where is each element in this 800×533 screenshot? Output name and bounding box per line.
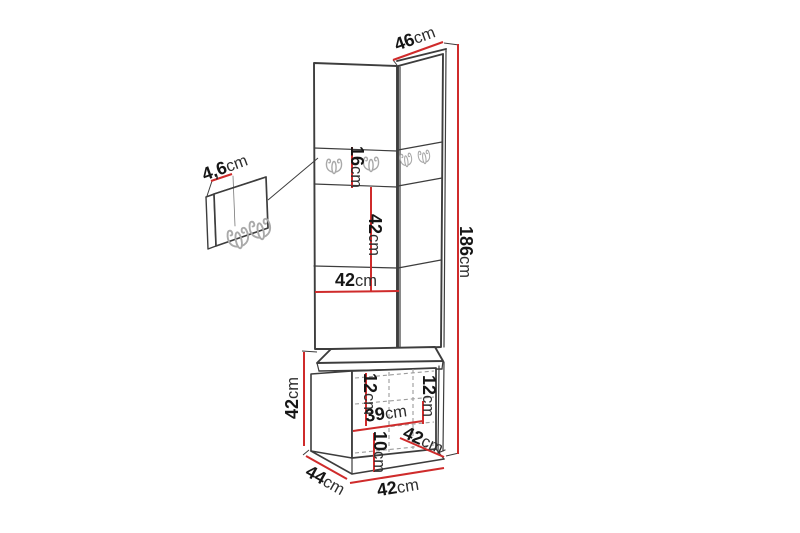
dim-line-panel-width	[315, 291, 399, 292]
dim-label-panel-width: 42cm	[335, 270, 377, 290]
right-wall-panel	[397, 49, 446, 349]
callout-line	[268, 158, 318, 200]
dim-label-mid-panel-height: 42cm	[365, 214, 385, 256]
dim-label-hook-row-height: 16cm	[347, 146, 367, 188]
dim-label-bench-height: 42cm	[282, 377, 302, 419]
seat-cushion	[317, 347, 443, 371]
diagram-canvas: 46cm 186cm 4,6cm 16cm 42cm 42cm 42cm 12c…	[0, 0, 800, 533]
dim-label-hook-panel-thickness: 4,6cm	[199, 150, 250, 185]
dim-label-top-width: 46cm	[391, 21, 437, 54]
dim-label-bottom-section-height: 10cm	[370, 431, 390, 473]
dim-label-seat-inset-right: 12cm	[419, 375, 439, 417]
left-wall-panel	[314, 63, 400, 349]
furniture-dimension-diagram: 46cm 186cm 4,6cm 16cm 42cm 42cm 42cm 12c…	[0, 0, 800, 533]
dim-label-total-height: 186cm	[456, 226, 476, 278]
